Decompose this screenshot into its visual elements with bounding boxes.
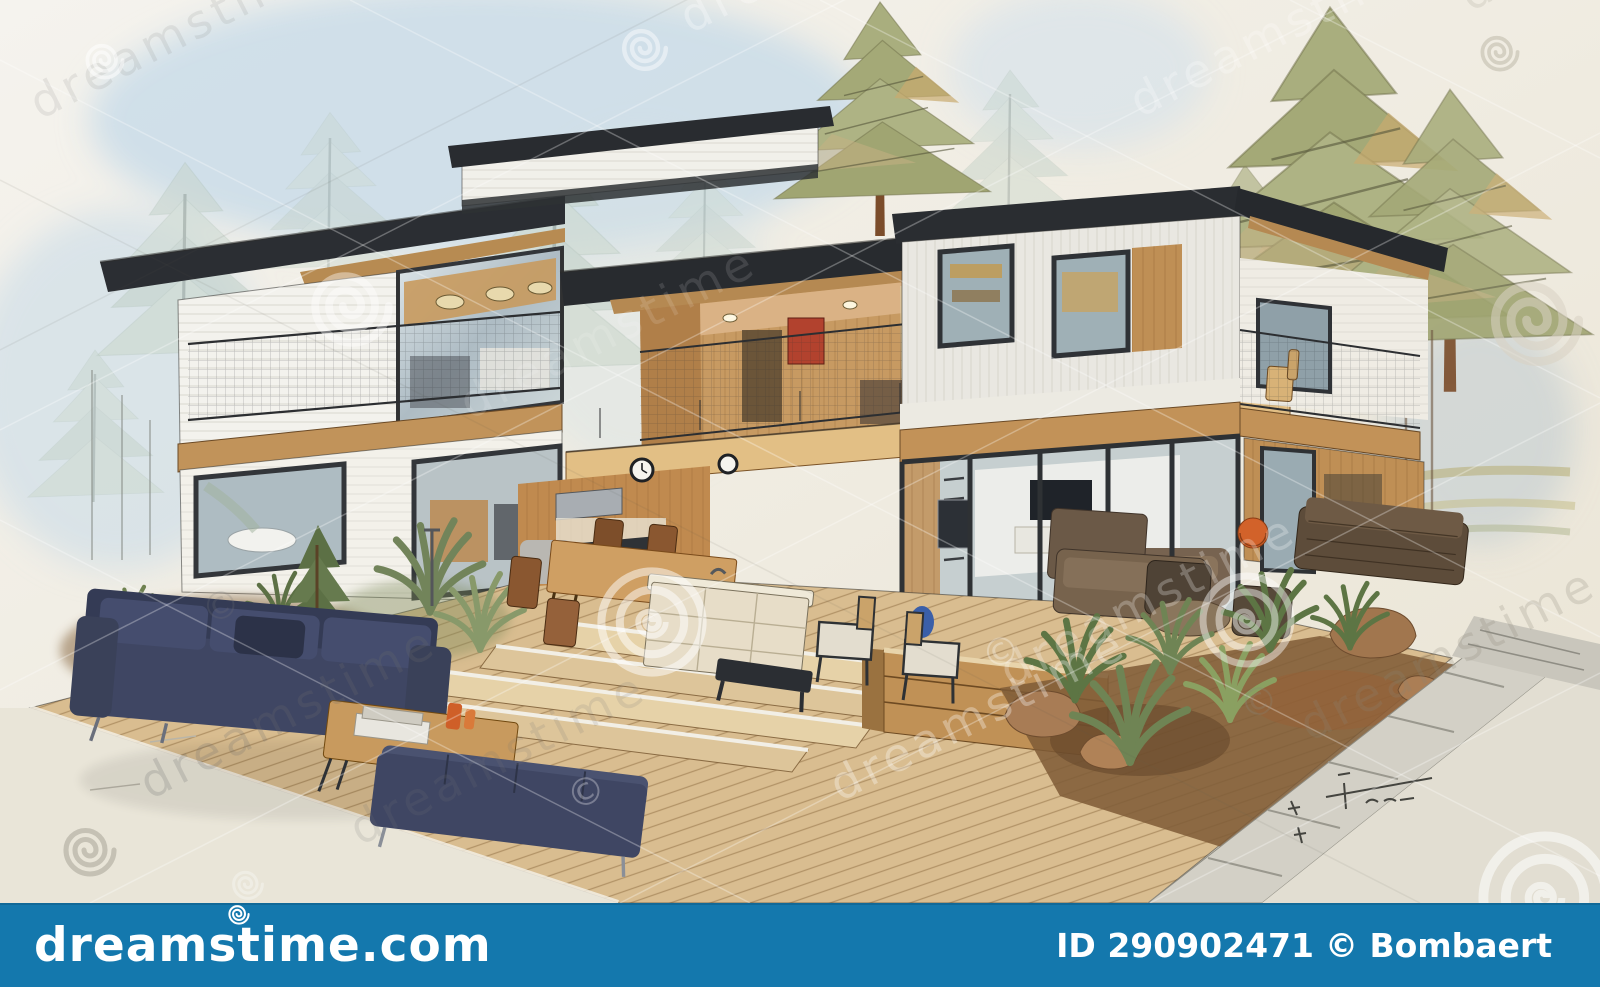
spiral-icon (227, 902, 251, 926)
illustration (0, 0, 1600, 903)
brand-logo-text: dreamstime.com (34, 918, 492, 973)
orange-pouf (1238, 518, 1268, 548)
credit-text: ID 290902471 © Bombaert (1056, 926, 1552, 965)
brand-logo: dreamstime.com (34, 918, 492, 973)
wall-screen-panel (938, 500, 968, 548)
range-hood (556, 488, 622, 520)
stock-image-page: dreamstime dreamstime dreamstime dreamst… (0, 0, 1600, 987)
right-balcony (1240, 258, 1428, 460)
wall-clock-2 (719, 455, 737, 473)
watermark-footer-bar: dreamstime.com ID 290902471 © Bombaert (0, 903, 1600, 987)
image-id: ID 290902471 (1056, 926, 1314, 965)
author: © Bombaert (1325, 926, 1552, 965)
